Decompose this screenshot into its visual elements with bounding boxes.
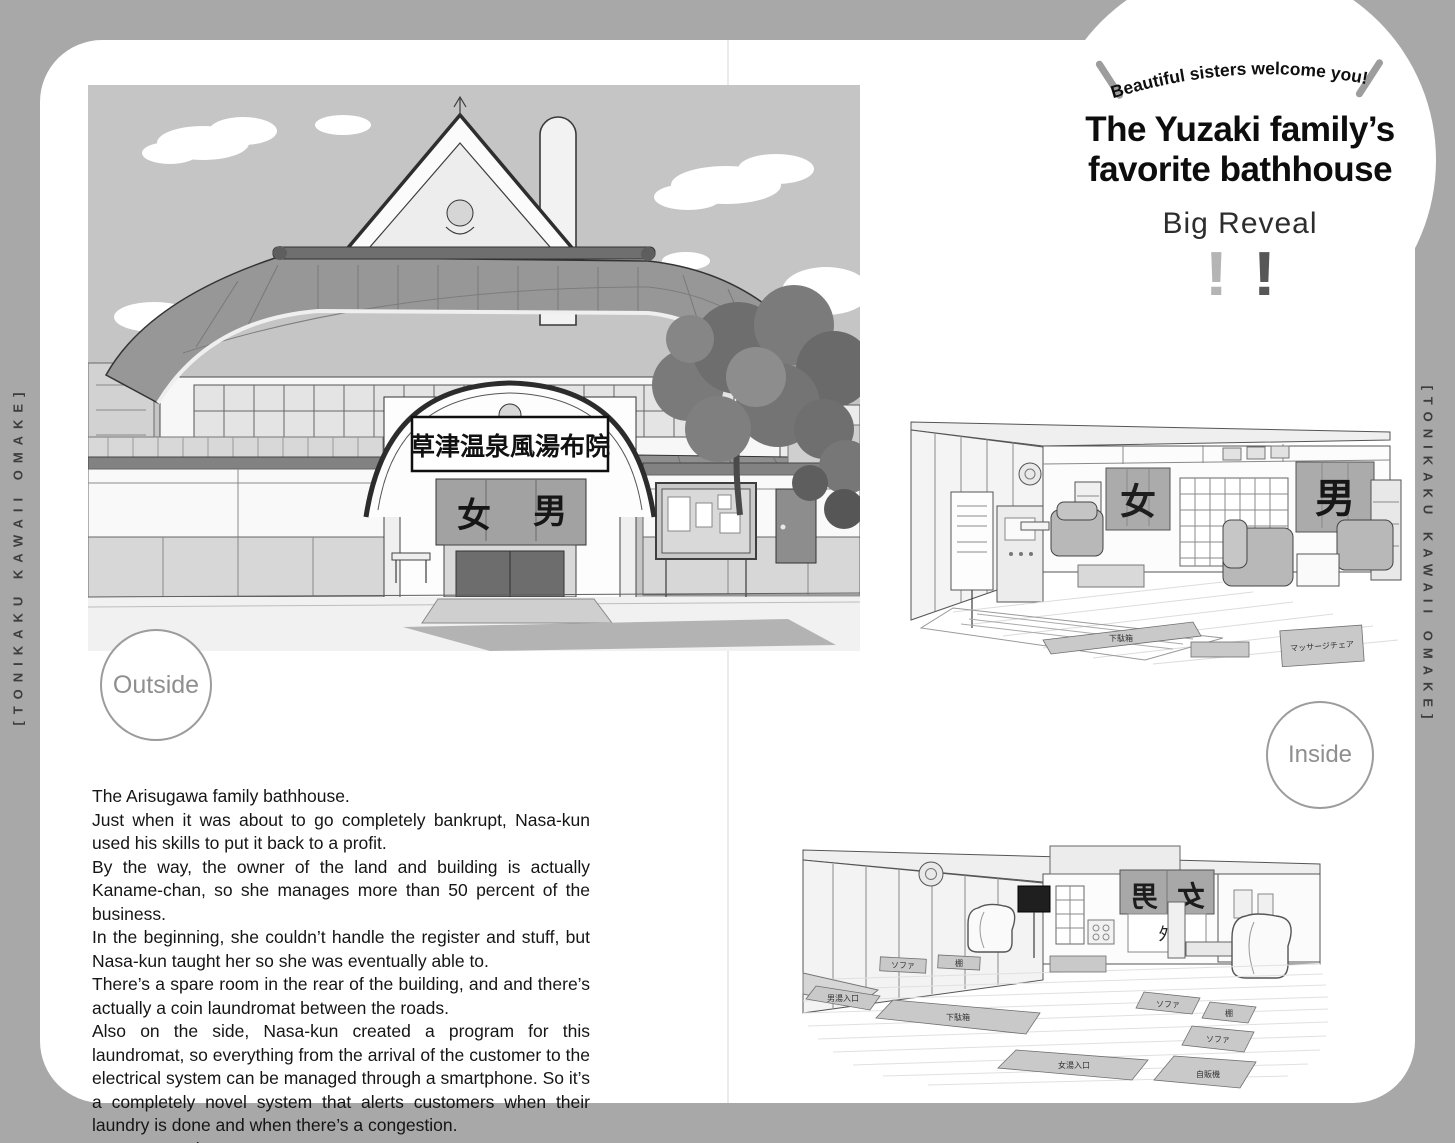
outside-label: Outside (113, 671, 199, 700)
rear-banner: 男 女 外 (1120, 870, 1214, 952)
mat-vending: 自販機 (1154, 1056, 1256, 1088)
header-badge: Beautiful sisters welcome you! The Yuzak… (1044, 0, 1436, 356)
paragraph: Just when it was about to go completely … (92, 809, 590, 856)
entrance-noren: 女 男 (436, 479, 586, 545)
wall-fan-rear (919, 862, 943, 886)
exclamation-marks: ! ! (1044, 244, 1436, 306)
svg-text:女湯入口: 女湯入口 (1058, 1060, 1090, 1070)
small-mat (1191, 642, 1249, 657)
paragraph: There’s a spare room in the rear of the … (92, 973, 590, 1020)
bench-rear (1186, 942, 1238, 956)
badge-subtitle: Big Reveal (1044, 207, 1436, 241)
noren-men-kanji: 男 (533, 493, 567, 531)
svg-text:男湯入口: 男湯入口 (827, 993, 859, 1003)
exclamation-left: ! (1204, 244, 1228, 306)
spine-text-right: [TONIKAKU KAWAII OMAKE] (1421, 286, 1436, 826)
mat-sofa-a: ソファ (880, 957, 927, 973)
body-text-block: The Arisugawa family bathhouse. Just whe… (92, 785, 590, 1143)
badge-title-line2: favorite bathhouse (1044, 150, 1436, 190)
svg-text:棚: 棚 (955, 958, 963, 968)
street (88, 593, 860, 651)
center-mat (1050, 956, 1106, 972)
mat-sofa-c: ソファ (1182, 1026, 1254, 1052)
mat-women-entrance: 女湯入口 (998, 1050, 1148, 1080)
badge-tagline: Beautiful sisters welcome you! (1108, 58, 1369, 102)
paragraph: In the beginning, she couldn’t handle th… (92, 926, 590, 973)
svg-text:自販機: 自販機 (1196, 1069, 1220, 1079)
bathhouse-sign-text: 草津温泉風湯布院 (410, 432, 610, 461)
svg-text:ソファ: ソファ (1206, 1035, 1230, 1044)
entrance-step-mat (422, 599, 612, 623)
paragraph: Also on the side, Nasa-kun created a pro… (92, 1020, 590, 1138)
interior-bottom-illustration: 男 女 外 (788, 808, 1333, 1093)
wall-tv (1018, 886, 1050, 912)
entry-mat (1078, 565, 1144, 587)
mat-geta: 下駄箱 (876, 1000, 1040, 1034)
massage-chair-left (968, 904, 1015, 952)
exterior-illustration: 草津温泉風湯布院 女 男 (88, 85, 860, 651)
banner-men-mirrored: 男 (1130, 881, 1158, 912)
outside-label-circle: Outside (100, 629, 212, 741)
interior-top-illustration: 女 男 (893, 402, 1408, 667)
noren-women-kanji: 女 (457, 496, 491, 535)
massage-chair-right (1232, 914, 1291, 978)
inside-label-circle: Inside (1266, 701, 1374, 809)
wall-fan (1019, 463, 1041, 485)
paragraph: The Arisugawa family bathhouse. (92, 785, 590, 809)
bathhouse-sign: 草津温泉風湯布院 (410, 417, 610, 471)
side-table (1297, 554, 1339, 586)
svg-text:下駄箱: 下駄箱 (946, 1012, 970, 1022)
paragraph: By the way, the owner of the land and bu… (92, 856, 590, 927)
svg-text:ソファ: ソファ (1156, 1000, 1180, 1009)
svg-text:女: 女 (1120, 481, 1156, 522)
page-background: [TONIKAKU KAWAII OMAKE] [TONIKAKU KAWAII… (0, 0, 1455, 1143)
mat-sofa-b: ソファ (1136, 992, 1200, 1014)
mat-shelf-b: 棚 (1202, 1002, 1256, 1023)
paragraph: It’s very popular. (92, 1138, 590, 1143)
mat-shelf-a: 棚 (938, 955, 981, 970)
svg-text:男: 男 (1315, 477, 1355, 521)
badge-title-line1: The Yuzaki family’s (1044, 110, 1436, 150)
svg-text:ソファ: ソファ (891, 961, 915, 970)
inside-label: Inside (1288, 741, 1352, 769)
svg-text:下駄箱: 下駄箱 (1109, 633, 1133, 643)
exclamation-right: ! (1252, 244, 1276, 306)
entrance: 草津温泉風湯布院 女 男 (366, 383, 654, 600)
spine-text-left: [TONIKAKU KAWAII OMAKE] (11, 286, 26, 826)
street-wall-left (88, 437, 391, 597)
svg-text:棚: 棚 (1225, 1008, 1233, 1018)
women-noren: 女 (1106, 468, 1170, 530)
badge-title: The Yuzaki family’s favorite bathhouse (1044, 110, 1436, 190)
svg-text:Beautiful sisters welcome you!: Beautiful sisters welcome you! (1108, 58, 1369, 102)
massage-mat: マッサージチェア (1280, 625, 1364, 667)
